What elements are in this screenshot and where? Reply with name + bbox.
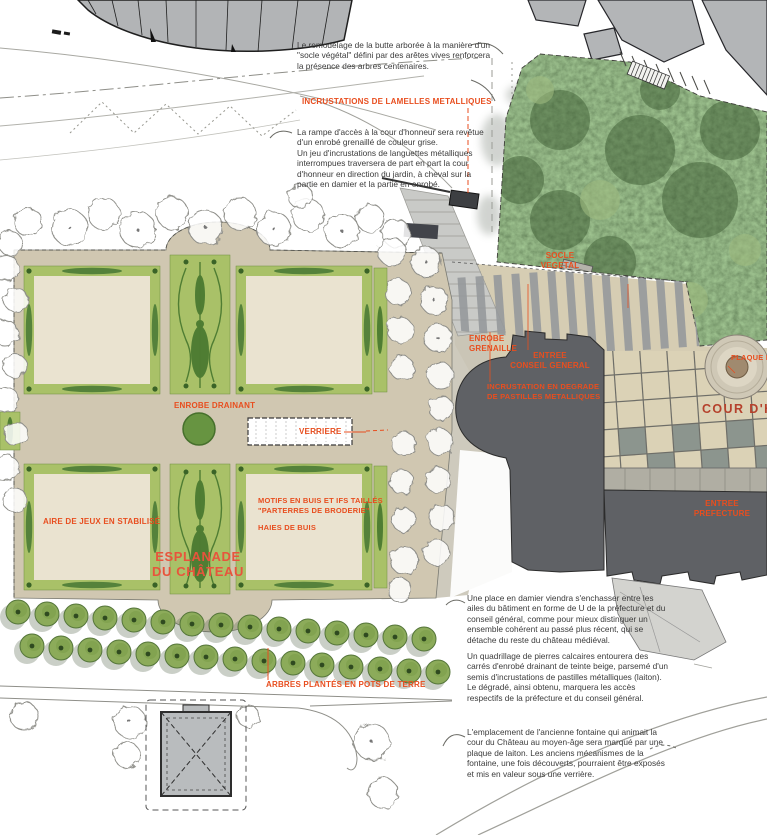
pavilion (146, 700, 246, 810)
white-wedge (450, 450, 512, 598)
center-topiary-circle (183, 413, 215, 445)
label-verriere: VERRIERE (299, 427, 342, 437)
label-aire-jeux: AIRE DE JEUX EN STABILISÉ (43, 517, 160, 527)
label-entree-conseil: ENTREE CONSEIL GENERAL (504, 351, 596, 372)
tree-rows (0, 600, 450, 690)
label-socle-vegetal: SOCLE VEGETAL (524, 251, 596, 272)
fountain-plaque-circle (705, 335, 767, 399)
label-incrustations-lamelles: INCRUSTATIONS DE LAMELLES METALLIQUES (302, 97, 492, 107)
paragraph-fontaine: L'emplacement de l'ancienne fontaine qui… (467, 727, 673, 779)
label-entree-prefecture: ENTREE PREFECTURE (682, 499, 762, 520)
site-plan-svg (0, 0, 767, 835)
label-motifs-buis: MOTIFS EN BUIS ET IFS TAILLÉS "PARTERRES… (258, 496, 383, 516)
label-arbres-pots: ARBRES PLANTÉS EN POTS DE TERRE (266, 680, 426, 690)
label-haies-buis: HAIES DE BUIS (258, 523, 316, 533)
label-cour-honneur: COUR D'HON (702, 402, 767, 416)
paragraph-rampe: La rampe d'accès à la cour d'honneur ser… (297, 127, 497, 190)
label-incrustation-degrade: INCRUSTATION EN DEGRADE DE PASTILLES MET… (487, 382, 600, 402)
label-esplanade: ESPLANADE DU CHÂTEAU (139, 549, 257, 580)
paragraph-butte: Le remodelage de la butte arborée à la m… (297, 40, 497, 71)
label-enrobe-drainant: ENROBE DRAINANT (174, 401, 255, 411)
landscape-masterplan: Le remodelage de la butte arborée à la m… (0, 0, 767, 835)
paragraph-quadrillage: Un quadrillage de pierres calcaires ento… (467, 651, 673, 703)
paragraph-damier: Une place en damier viendra s'enchasser … (467, 593, 673, 645)
label-plaque-metallique: PLAQUE ME EMPLACEM (731, 353, 767, 363)
